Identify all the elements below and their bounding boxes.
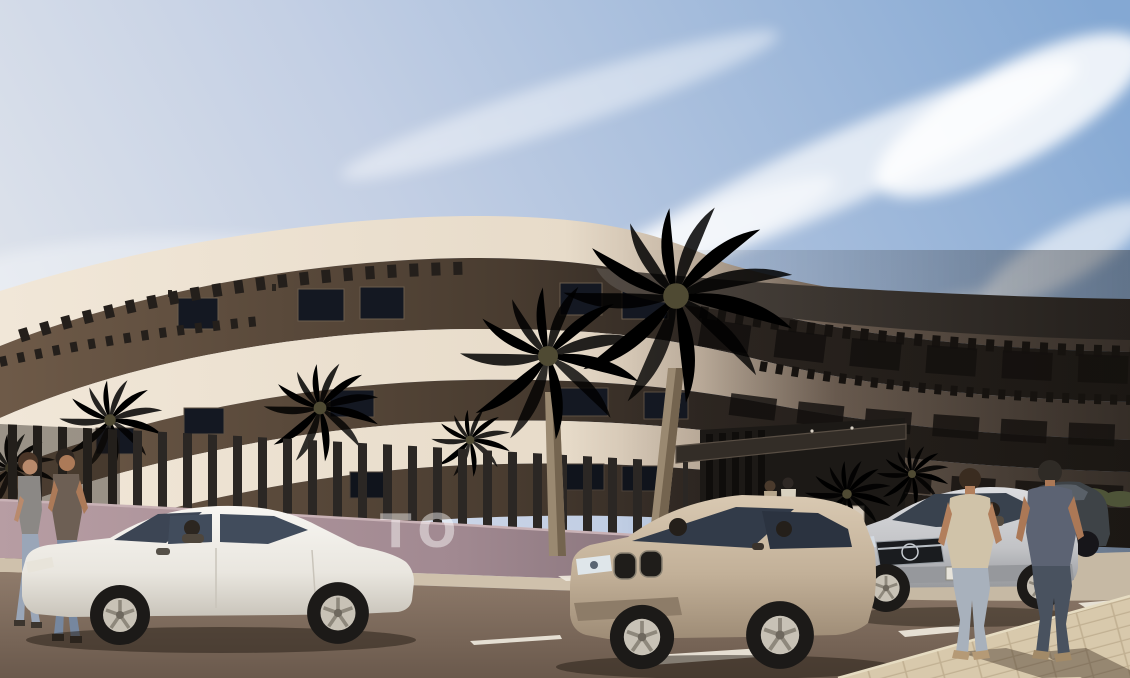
architectural-render: TO <box>0 0 1130 678</box>
suv-passenger <box>776 521 792 537</box>
grille <box>876 538 944 566</box>
scene-canvas: TO <box>0 0 1130 678</box>
wall-text: TO <box>380 504 462 558</box>
sedan-driver <box>184 520 200 536</box>
suv-driver <box>669 518 687 536</box>
